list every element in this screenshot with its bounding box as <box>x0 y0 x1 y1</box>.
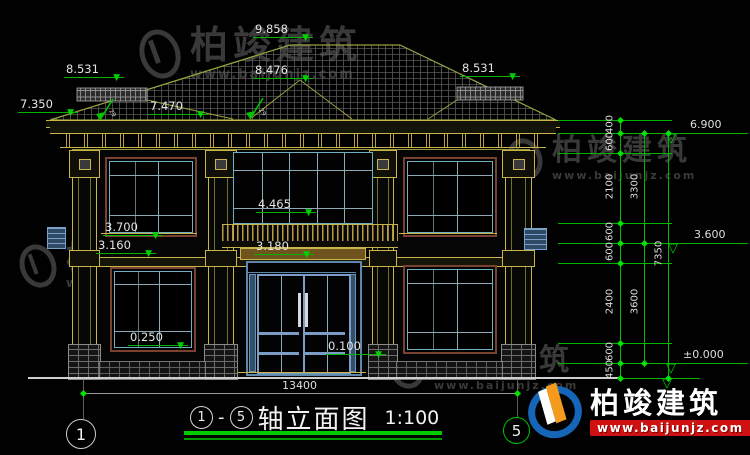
elevation-triangle-icon: ▽ <box>666 364 676 374</box>
title-underline-thick <box>184 431 442 435</box>
pilaster-capital <box>69 150 100 178</box>
elev-mark-side-ridge-right: 8.531▼ <box>460 61 520 77</box>
elevation-triangle-icon: ▼ <box>305 208 312 218</box>
title-axis-end: 5 <box>230 406 253 429</box>
stone-base <box>204 344 238 380</box>
elevation-triangle-icon: ▼ <box>145 249 152 259</box>
window-1f-right <box>403 265 497 354</box>
level-label: 6.900 <box>690 119 722 131</box>
elevation-triangle-icon: ▼ <box>113 73 120 83</box>
level-label: ±0.000 <box>683 349 724 361</box>
level-label: 3.600 <box>694 229 726 241</box>
elev-mark-porch: 0.100▼ <box>326 339 386 355</box>
elev-mark-eave: 7.350▼ <box>18 97 78 113</box>
pilaster-band <box>205 250 237 267</box>
dim-seg: 450 <box>605 348 616 392</box>
dim-total: 7350 <box>654 232 665 276</box>
overall-width-label: 13400 <box>282 380 317 392</box>
elev-mark-roof-mid: 7.470▼ <box>148 99 208 115</box>
brand-url: www.baijunjz.com <box>590 420 750 436</box>
central-window-band <box>233 152 373 224</box>
pilaster-capital <box>502 150 535 178</box>
pilaster-band <box>502 250 535 267</box>
door-leaf-right <box>303 274 351 374</box>
dim-seg: 600 <box>605 230 616 274</box>
elevation-triangle-icon: ▼ <box>67 108 74 118</box>
elev-mark-ridge: 9.858▼ <box>253 22 313 38</box>
pilaster-band <box>369 250 397 267</box>
title-sep: - <box>218 407 225 428</box>
axis-bubble-5: 5 <box>503 417 530 444</box>
eave-moulding <box>50 127 556 134</box>
dim-subtotal: 3600 <box>630 280 641 324</box>
title-axis-start: 1 <box>190 406 213 429</box>
elev-mark-floor-band: 3.160▼ <box>96 238 156 254</box>
ground-line <box>28 377 622 379</box>
dim-seg: 2400 <box>605 280 616 324</box>
elevation-triangle-icon: ▼ <box>375 350 382 360</box>
dim-chain-middle <box>644 133 645 363</box>
ac-unit-right <box>524 228 547 250</box>
pilaster-capital <box>369 150 397 178</box>
brand-logo: 柏竣建筑 www.baijunjz.com <box>528 386 750 438</box>
elevation-triangle-icon: ▽ <box>668 244 678 254</box>
door-handle <box>298 293 301 327</box>
elev-mark-sill-2f: 3.700▼ <box>103 220 163 236</box>
elev-mark-central-window: 4.465▼ <box>256 197 316 213</box>
elev-mark-canopy: 3.180▼ <box>254 239 314 255</box>
elev-mark-side-ridge-left: 8.531▼ <box>64 62 124 78</box>
stone-base <box>501 344 536 380</box>
elevation-triangle-icon: ▼ <box>302 74 309 84</box>
window-2f-right <box>403 157 497 237</box>
modillion-row <box>60 134 546 148</box>
door-handle <box>305 293 308 327</box>
stone-base <box>68 344 101 380</box>
cad-elevation-drawing: 柏竣建筑 www.baijunjz.com 柏竣建筑 www.baijunjz.… <box>0 0 750 455</box>
brand-name: 柏竣建筑 <box>590 389 750 418</box>
elevation-triangle-icon: ▼ <box>302 33 309 43</box>
title-underline-thin <box>184 438 442 440</box>
ridge-tiles-left <box>77 88 147 101</box>
elevation-triangle-icon: ▼ <box>509 72 516 82</box>
door-sidelight <box>249 274 256 372</box>
brand-logo-icon <box>520 378 590 446</box>
elev-mark-sill-1f: 0.250▼ <box>128 330 188 346</box>
elev-mark-sub-ridge: 8.476▼ <box>253 63 313 79</box>
axis-bubble-1: 1 <box>66 419 96 449</box>
elevation-triangle-icon: ▼ <box>197 110 204 120</box>
window-sill <box>399 233 497 236</box>
elevation-triangle-icon: ▼ <box>177 341 184 351</box>
ac-unit-left <box>47 227 66 249</box>
overall-dim-line <box>83 393 517 394</box>
elevation-triangle-icon: ▽ <box>666 134 676 144</box>
dim-subtotal: 3300 <box>630 165 641 209</box>
title-scale: 1:100 <box>385 407 440 429</box>
elevation-triangle-icon: ▼ <box>303 250 310 260</box>
dim-seg: 2100 <box>605 165 616 209</box>
ridge-tiles-right <box>457 87 523 100</box>
dim-seg: 600 <box>605 120 616 164</box>
entry-door-assembly <box>246 261 362 376</box>
door-threshold <box>238 372 366 375</box>
